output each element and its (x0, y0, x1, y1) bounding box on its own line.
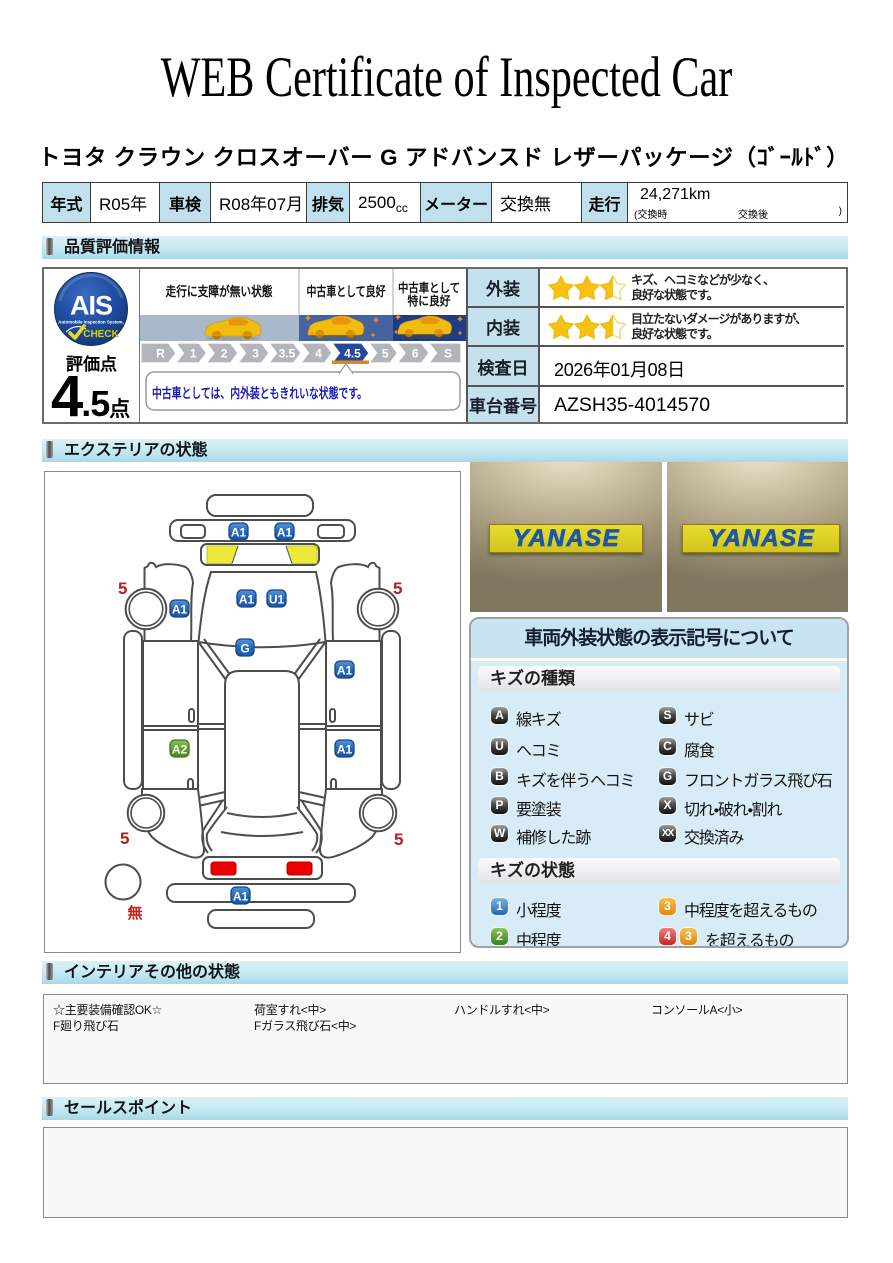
svg-text:特に良好: 特に良好 (408, 293, 451, 308)
svg-text:A1: A1 (172, 603, 188, 617)
svg-text:R: R (156, 347, 165, 361)
svg-text:A1: A1 (337, 664, 353, 678)
svg-text:A1: A1 (337, 743, 353, 757)
svg-text:S: S (444, 347, 452, 361)
svg-text:無: 無 (127, 904, 142, 922)
svg-text:3: 3 (252, 347, 259, 361)
svg-text:Automobile Inspection System,: Automobile Inspection System, (58, 320, 123, 325)
svg-text:A1: A1 (233, 890, 249, 904)
svg-text:6: 6 (412, 347, 419, 361)
svg-text:中古車として: 中古車として (398, 280, 460, 295)
svg-text:4: 4 (315, 347, 322, 361)
svg-text:5: 5 (120, 829, 129, 848)
svg-text:CHECK: CHECK (83, 329, 119, 340)
svg-text:4.5: 4.5 (344, 347, 361, 361)
svg-text:5: 5 (118, 579, 127, 598)
svg-text:5: 5 (393, 579, 402, 598)
svg-text:U1: U1 (269, 593, 285, 607)
svg-text:2: 2 (221, 347, 228, 361)
svg-text:5: 5 (394, 830, 403, 849)
svg-text:5: 5 (382, 347, 389, 361)
svg-text:中古車としては、内外装ともきれいな状態です。: 中古車としては、内外装ともきれいな状態です。 (152, 385, 367, 401)
svg-text:AIS: AIS (70, 291, 112, 321)
svg-text:走行に支障が無い状態: 走行に支障が無い状態 (166, 284, 273, 299)
svg-text:A2: A2 (172, 743, 188, 757)
svg-text:中古車として良好: 中古車として良好 (307, 284, 386, 299)
svg-text:A1: A1 (231, 526, 247, 540)
svg-text:A1: A1 (239, 593, 255, 607)
svg-text:A1: A1 (277, 526, 293, 540)
svg-text:3.5: 3.5 (279, 347, 296, 361)
svg-text:1: 1 (190, 347, 197, 361)
svg-text:G: G (240, 642, 249, 656)
